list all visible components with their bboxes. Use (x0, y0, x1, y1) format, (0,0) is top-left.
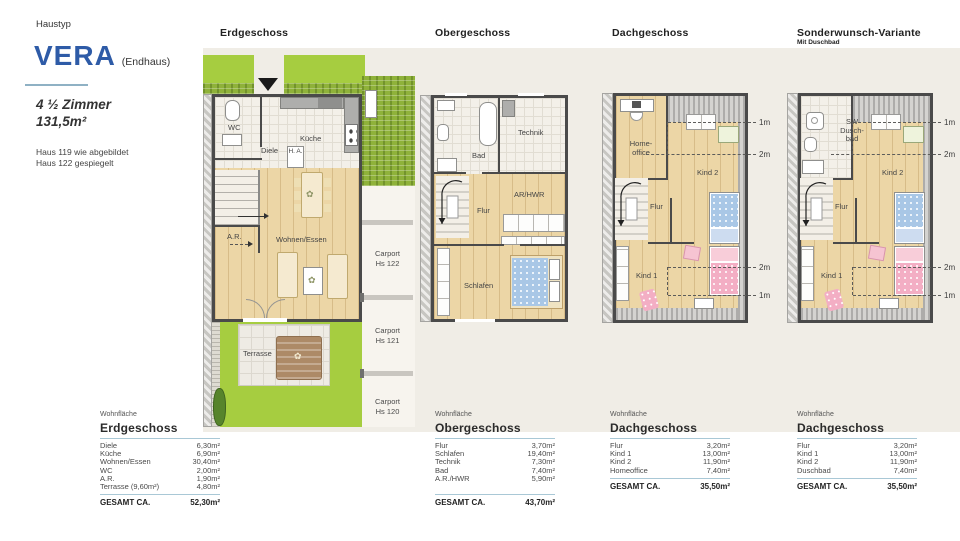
carport-label-121: Carport Hs 121 (362, 326, 413, 345)
roof-height-line (852, 122, 853, 154)
header-sonderwunsch-sub: Mit Duschbad (797, 39, 840, 46)
floorplan-sheet: Haustyp VERA(Endhaus) 4 ½ Zimmer 131,5m²… (0, 0, 960, 541)
stairs-og-icon (436, 176, 469, 238)
washing-machine (437, 158, 457, 172)
area-table-obergeschoss: Wohnfläche Obergeschoss Flur3,70m² Schla… (435, 411, 555, 507)
row-value: 5,90m² (532, 475, 555, 483)
row-value: 4,80m² (197, 483, 220, 491)
table-total-row: GESAMT CA.35,50m² (797, 482, 917, 491)
neighbor-wall-hatch-dg (602, 93, 613, 323)
neighbor-wall-hatch-sw (787, 93, 798, 323)
table-total-row: GESAMT CA.52,30m² (100, 498, 220, 507)
carport-word: Carport (362, 326, 413, 336)
entry-arrow-icon (258, 78, 278, 91)
carport-divider (362, 220, 413, 225)
dresser (694, 298, 714, 309)
header-erdgeschoss: Erdgeschoss (220, 27, 288, 39)
roof-height-line (667, 122, 668, 154)
table-rule (435, 494, 555, 495)
kids-chair (683, 245, 701, 262)
roof-slope-bottom (616, 308, 745, 320)
wall-segment (670, 198, 672, 244)
washing-machine (802, 160, 824, 174)
table-total-row: GESAMT CA.43,70m² (435, 498, 555, 507)
room-label-technik: Technik (518, 128, 543, 137)
room-label-flur-dg: Flur (650, 202, 663, 211)
table-title: Erdgeschoss (100, 421, 220, 435)
total-label: GESAMT CA. (100, 498, 150, 507)
armchair (327, 254, 348, 299)
header-sonderwunsch: Sonderwunsch-Variante (797, 27, 921, 39)
room-label-terrasse: Terrasse (243, 349, 272, 358)
roof-height-line (667, 267, 668, 295)
carport-number: Hs 121 (362, 336, 413, 346)
brand-row: VERA(Endhaus) (34, 40, 170, 72)
roof-height-line (668, 267, 756, 268)
measure-label-1m: 1m (944, 118, 955, 127)
garden-front (203, 55, 365, 83)
row-value: 7,40m² (894, 467, 917, 475)
table-title: Obergeschoss (435, 421, 555, 435)
room-label-wohnen: Wohnen/Essen (276, 235, 327, 244)
wardrobe (503, 214, 565, 232)
hedge-note-box (365, 90, 377, 118)
carport-post (360, 369, 364, 378)
roof-height-line (668, 122, 756, 123)
row-label: Homeoffice (610, 467, 648, 475)
carport-divider (362, 371, 413, 376)
carport-number: Hs 120 (362, 407, 413, 417)
table-rows: Flur3,20m² Kind 113,00m² Kind 211,90m² H… (610, 442, 730, 476)
total-label: GESAMT CA. (435, 498, 485, 507)
double-bed (512, 258, 548, 306)
table-rows: Flur3,70m² Schlafen19,40m² Technik7,30m²… (435, 442, 555, 492)
area-table-erdgeschoss: Wohnfläche Erdgeschoss Diele6,30m² Küche… (100, 411, 220, 507)
room-label-kind1-dg: Kind 1 (636, 271, 657, 280)
dining-chairs-right (324, 178, 331, 212)
house-note-2: Haus 122 gespiegelt (36, 158, 128, 169)
table-title: Dachgeschoss (610, 421, 730, 435)
table-row: Terrasse (9,60m²)4,80m² (100, 483, 220, 491)
wall-segment (434, 172, 466, 174)
table-rows: Flur3,20m² Kind 113,00m² Kind 211,90m² D… (797, 442, 917, 476)
laptop-icon (632, 101, 641, 108)
carport-post (360, 293, 364, 302)
sink (222, 134, 242, 146)
table-eyebrow: Wohnfläche (100, 411, 220, 418)
kids-bed-blue (711, 194, 738, 227)
toilet (225, 100, 240, 121)
row-label: A.R./HWR (435, 475, 470, 483)
sink (437, 100, 455, 111)
shower-drain-icon (811, 117, 818, 124)
roof-height-line (853, 267, 941, 268)
pillow (896, 248, 923, 261)
crib (903, 126, 924, 143)
room-label-kueche: Küche (300, 134, 321, 143)
house-notes: Haus 119 wie abgebildet Haus 122 gespieg… (36, 147, 128, 169)
header-dachgeschoss: Dachgeschoss (612, 27, 689, 39)
pillow (549, 259, 560, 280)
stair-arrow-icon (264, 213, 269, 219)
wall-segment (648, 242, 694, 244)
total-value: 35,50m² (700, 482, 730, 491)
kitchen-appliance (318, 98, 342, 108)
stairs-sw-icon (800, 178, 833, 240)
bed-foot (896, 229, 923, 242)
total-value: 35,50m² (887, 482, 917, 491)
haustyp-variant: (Endhaus) (122, 56, 170, 68)
carport-label-122: Carport Hs 122 (362, 249, 413, 268)
measure-label-2m: 2m (759, 263, 770, 272)
sofa (277, 252, 298, 298)
room-label-diele: Diele (261, 146, 278, 155)
table-total-row: GESAMT CA.35,50m² (610, 482, 730, 491)
carport-divider (362, 295, 413, 300)
room-label-flur-sw: Flur (835, 202, 848, 211)
wardrobe (616, 246, 629, 301)
table-row: A.R./HWR5,90m² (435, 475, 555, 483)
window (455, 319, 495, 322)
roof-height-line (831, 154, 941, 155)
hedge-front (203, 83, 365, 94)
pillow (711, 248, 738, 261)
stairs-dg-icon (615, 178, 648, 240)
room-label-wc: WC (228, 123, 241, 132)
house-note-1: Haus 119 wie abgebildet (36, 147, 128, 158)
measure-label-2m: 2m (944, 150, 955, 159)
total-label: GESAMT CA. (610, 482, 660, 491)
roof-height-line (852, 267, 853, 295)
carport-word: Carport (362, 249, 413, 259)
roof-height-line (853, 122, 941, 123)
wall-segment (258, 225, 260, 253)
technik-unit (502, 100, 515, 117)
crib (718, 126, 739, 143)
stove-icon (345, 124, 358, 146)
door-arrow-icon (248, 241, 253, 247)
measure-label-2m: 2m (759, 150, 770, 159)
room-label-ar: A.R. (227, 232, 242, 241)
roof-height-line (853, 295, 941, 296)
wardrobe (801, 246, 814, 301)
table-rule (797, 438, 917, 439)
bathtub (479, 102, 497, 146)
dining-chairs-left (294, 178, 301, 212)
carport-word: Carport (362, 397, 413, 407)
measure-label-2m: 2m (944, 263, 955, 272)
table-rows: Diele6,30m² Küche6,90m² Wohnen/Essen30,4… (100, 442, 220, 492)
room-label-arhwr: AR/HWR (514, 190, 544, 199)
measure-label-1m: 1m (759, 118, 770, 127)
table-title: Dachgeschoss (797, 421, 917, 435)
total-value: 52,30m² (190, 498, 220, 507)
wall-segment (215, 225, 260, 227)
row-label: Terrasse (9,60m²) (100, 483, 159, 491)
room-label-bad: Bad (472, 151, 485, 160)
wall-segment (482, 172, 565, 174)
stair-direction-line (238, 216, 264, 217)
wardrobe (437, 248, 450, 316)
roof-height-line (668, 295, 756, 296)
plant-icon: ✿ (294, 352, 302, 361)
table-row: Homeoffice7,40m² (610, 467, 730, 475)
row-label: Duschbad (797, 467, 831, 475)
total-label: GESAMT CA. (797, 482, 847, 491)
sink (804, 137, 817, 152)
table-rule (100, 494, 220, 495)
room-label-ha: H. A. (288, 148, 303, 157)
area-table-dachgeschoss: Wohnfläche Dachgeschoss Flur3,20m² Kind … (610, 411, 730, 491)
room-label-kind2-dg: Kind 2 (697, 168, 718, 177)
table-row: Duschbad7,40m² (797, 467, 917, 475)
table-rule (610, 438, 730, 439)
wall-segment (520, 244, 565, 246)
wall-segment (260, 97, 262, 147)
door-swing-dash (230, 244, 248, 245)
room-label-schlafen: Schlafen (464, 281, 493, 290)
neighbor-wall-hatch-eg (203, 94, 212, 427)
table-rule (610, 478, 730, 479)
roof-slope-bottom (801, 308, 930, 320)
wall-segment (498, 98, 500, 174)
kids-chair (868, 245, 886, 262)
wall-segment (855, 198, 857, 244)
window (518, 93, 544, 96)
dresser (879, 298, 899, 309)
kids-bed-blue (896, 194, 923, 227)
haustyp-label: Haustyp (36, 19, 71, 30)
wall-segment (215, 158, 262, 160)
carport-number: Hs 122 (362, 259, 413, 269)
toilet (437, 124, 449, 141)
room-label-flur-og: Flur (477, 206, 490, 215)
area-table-sonderwunsch: Wohnfläche Dachgeschoss Flur3,20m² Kind … (797, 411, 917, 491)
neighbor-wall-hatch-og (420, 95, 431, 322)
table-eyebrow: Wohnfläche (797, 411, 917, 418)
title-divider (25, 84, 88, 86)
row-value: 7,40m² (707, 467, 730, 475)
total-value: 43,70m² (525, 498, 555, 507)
table-eyebrow: Wohnfläche (610, 411, 730, 418)
table-rule (435, 438, 555, 439)
haustyp-title: VERA (34, 40, 116, 71)
room-label-kind2-sw: Kind 2 (882, 168, 903, 177)
living-area-total: 131,5m² (36, 114, 86, 129)
window (445, 93, 467, 96)
pillow (549, 281, 560, 302)
table-rule (100, 438, 220, 439)
table-rule (797, 478, 917, 479)
rooms-count: 4 ½ Zimmer (36, 97, 111, 112)
table-eyebrow: Wohnfläche (435, 411, 555, 418)
measure-label-1m: 1m (944, 291, 955, 300)
plant-icon: ✿ (306, 190, 314, 199)
wall-segment (434, 244, 504, 246)
carport-label-120: Carport Hs 120 (362, 397, 413, 416)
wall-segment (833, 242, 879, 244)
header-obergeschoss: Obergeschoss (435, 27, 510, 39)
room-label-kind1-sw: Kind 1 (821, 271, 842, 280)
measure-label-1m: 1m (759, 291, 770, 300)
roof-height-line (646, 154, 756, 155)
plant-icon: ✿ (308, 276, 316, 285)
bed-foot (711, 229, 738, 242)
